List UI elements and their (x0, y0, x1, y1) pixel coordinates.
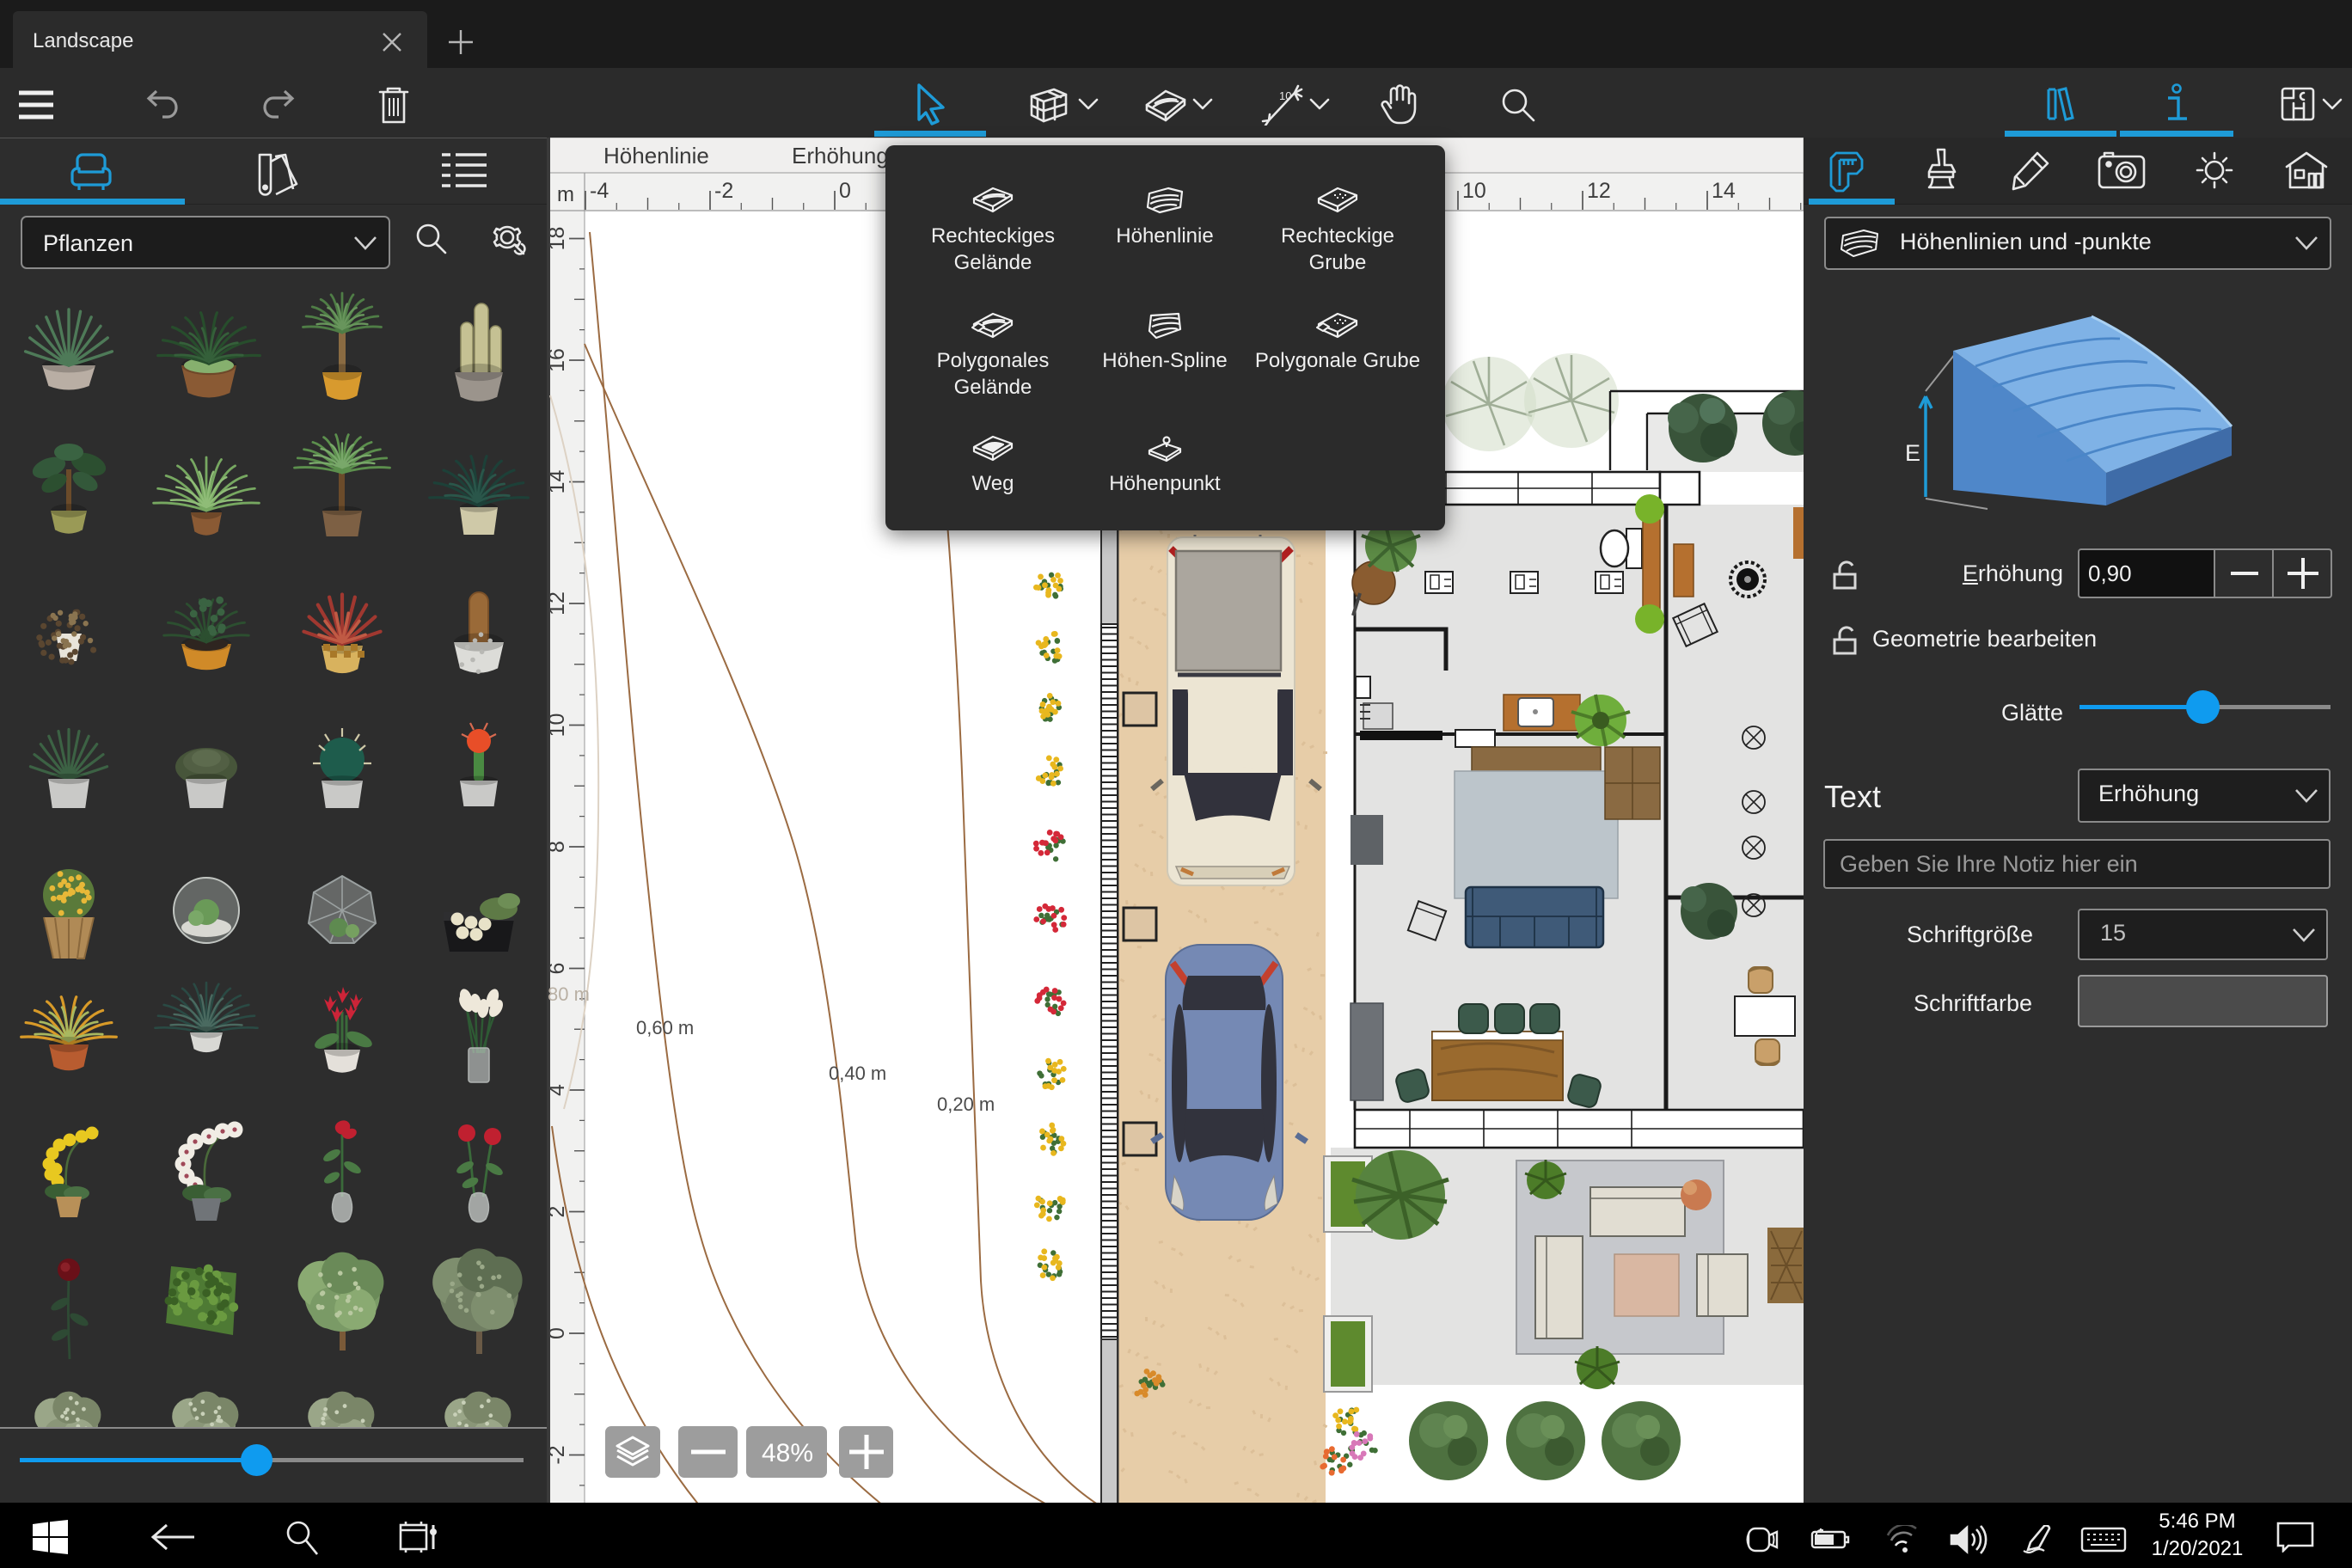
svg-text:10: 10 (1279, 89, 1291, 102)
svg-text:Rechteckiges: Rechteckiges (931, 224, 1055, 248)
svg-text:12: 12 (1587, 179, 1611, 203)
svg-text:Höhenpunkt: Höhenpunkt (1109, 472, 1221, 495)
svg-text:10: 10 (1462, 179, 1486, 203)
svg-text:6: 6 (547, 963, 569, 975)
svg-text:48%: 48% (762, 1439, 813, 1467)
svg-text:0: 0 (839, 179, 851, 203)
svg-text:-2: -2 (547, 1445, 569, 1464)
svg-text:80 m: 80 m (548, 983, 590, 1005)
svg-text:10: 10 (547, 714, 569, 738)
svg-text:Erhöhung: Erhöhung (792, 143, 889, 168)
svg-text:E: E (1905, 440, 1920, 466)
svg-text:Gelände: Gelände (954, 376, 1032, 399)
svg-text:Grube: Grube (1309, 251, 1367, 274)
svg-text:Polygonales: Polygonales (937, 349, 1050, 372)
svg-text:m: m (557, 183, 574, 206)
svg-text:12: 12 (547, 591, 569, 616)
svg-text:Höhenlinie: Höhenlinie (603, 143, 709, 168)
svg-text:Rechteckige: Rechteckige (1281, 224, 1394, 248)
svg-text:14: 14 (1712, 179, 1736, 203)
svg-text:Polygonale Grube: Polygonale Grube (1255, 349, 1420, 372)
svg-text:0,20 m: 0,20 m (937, 1093, 995, 1115)
svg-text:8: 8 (547, 841, 569, 853)
svg-text:Gelände: Gelände (954, 251, 1032, 274)
svg-text:18: 18 (547, 227, 569, 251)
svg-text:Weg: Weg (972, 472, 1014, 495)
svg-text:0,60 m: 0,60 m (636, 1017, 694, 1038)
svg-text:Höhen-Spline: Höhen-Spline (1102, 349, 1227, 372)
svg-text:0,40 m: 0,40 m (829, 1063, 886, 1084)
svg-text:4: 4 (547, 1084, 569, 1096)
svg-text:14: 14 (547, 470, 569, 494)
svg-text:16: 16 (547, 348, 569, 372)
svg-text:-4: -4 (590, 179, 609, 203)
svg-text:0: 0 (547, 1327, 569, 1339)
svg-text:Höhenlinie: Höhenlinie (1116, 224, 1213, 248)
svg-text:-2: -2 (714, 179, 733, 203)
